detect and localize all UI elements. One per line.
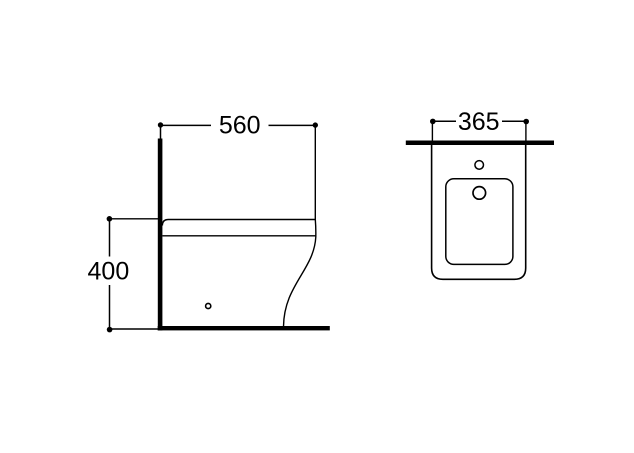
svg-text:400: 400 bbox=[88, 258, 130, 286]
svg-text:560: 560 bbox=[219, 112, 261, 140]
svg-text:365: 365 bbox=[458, 108, 500, 136]
